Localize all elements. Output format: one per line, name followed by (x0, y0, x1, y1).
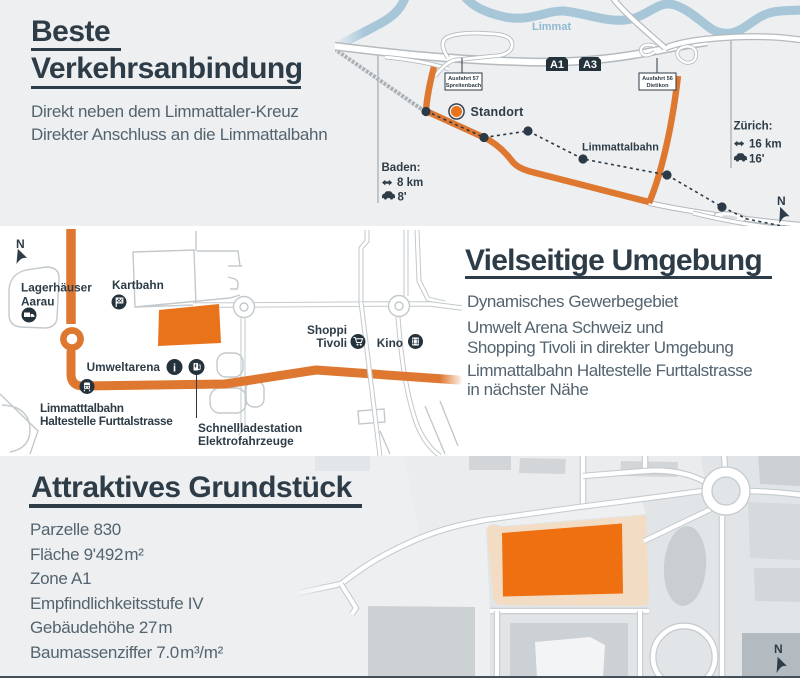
svg-text:A1: A1 (550, 59, 564, 71)
svg-text:Ausfahrt 57: Ausfahrt 57 (448, 76, 479, 82)
svg-text:Schnellladestation: Schnellladestation (198, 421, 302, 435)
svg-text:Kino: Kino (377, 336, 403, 350)
svg-text:Dietikon: Dietikon (646, 83, 669, 89)
svg-text:N: N (774, 642, 783, 656)
svg-text:Standort: Standort (471, 105, 525, 119)
svg-text:Ausfahrt 56: Ausfahrt 56 (642, 76, 673, 82)
svg-text:Haltestelle Furttalstrasse: Haltestelle Furttalstrasse (40, 414, 173, 428)
svg-text:N: N (16, 237, 25, 251)
svg-text:16 km: 16 km (749, 139, 782, 151)
svg-text:A3: A3 (583, 59, 597, 71)
svg-text:Limmat: Limmat (532, 21, 571, 33)
svg-text:Limmattalbahn: Limmattalbahn (582, 142, 659, 154)
svg-text:Umweltarena: Umweltarena (87, 360, 161, 374)
svg-text:Zürich:: Zürich: (734, 121, 773, 133)
svg-text:8 km: 8 km (397, 177, 423, 189)
svg-text:16': 16' (749, 154, 765, 166)
svg-text:Tivoli: Tivoli (316, 336, 347, 350)
svg-text:i: i (173, 363, 176, 375)
svg-text:Shoppi: Shoppi (307, 323, 347, 337)
svg-text:Lagerhäuser: Lagerhäuser (21, 281, 92, 295)
svg-text:Limmatttalbahn: Limmatttalbahn (40, 401, 124, 415)
svg-text:Aarau: Aarau (21, 295, 54, 309)
svg-text:N: N (777, 194, 786, 208)
svg-text:Baden:: Baden: (382, 162, 421, 174)
svg-text:8': 8' (398, 192, 407, 204)
svg-text:Kartbahn: Kartbahn (112, 278, 164, 292)
svg-text:Spreitenbach: Spreitenbach (446, 83, 482, 89)
svg-text:Elektrofahrzeuge: Elektrofahrzeuge (198, 434, 294, 448)
